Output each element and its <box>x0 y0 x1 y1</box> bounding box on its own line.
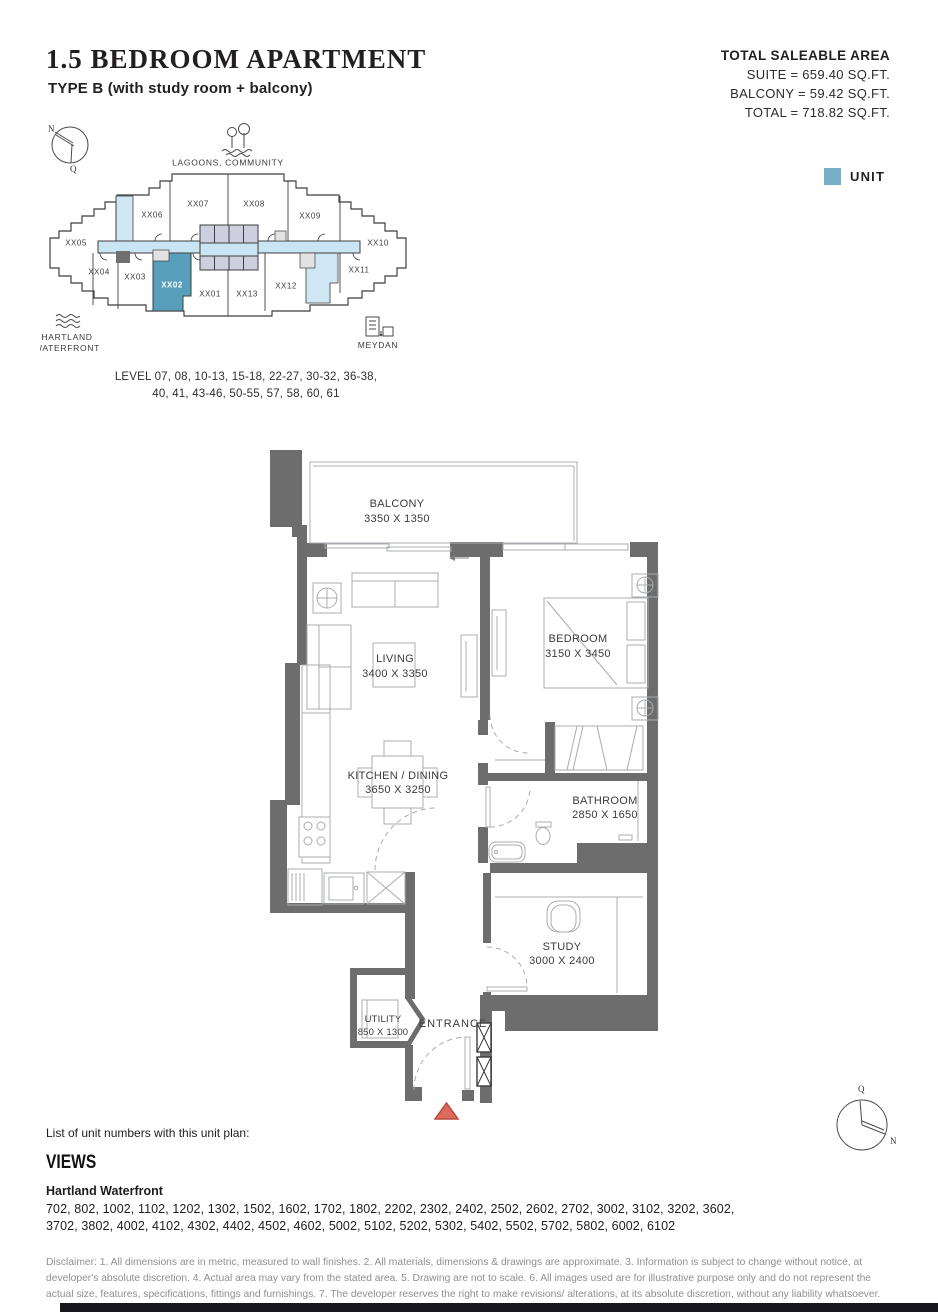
label-bathroom-name: BATHROOM <box>572 795 637 807</box>
unit-legend-label: UNIT <box>850 169 885 184</box>
compass-bottom-right-icon <box>837 1100 887 1150</box>
unit-label-xx08: XX08 <box>243 200 265 209</box>
label-entrance: ENTRANCE <box>419 1018 488 1030</box>
label-bedroom-name: BEDROOM <box>549 633 608 645</box>
label-study-dims: 3000 X 2400 <box>529 955 595 967</box>
compass-br-n-label: N <box>890 1136 897 1146</box>
unit-legend-swatch <box>824 168 841 185</box>
area-total: TOTAL = 718.82 SQ.FT. <box>721 105 890 120</box>
compass-top-left-icon <box>52 127 88 163</box>
bottom-bar <box>60 1303 938 1312</box>
unit-label-xx09: XX09 <box>299 212 321 221</box>
bathroom-door-arc <box>490 787 530 827</box>
lagoons-icon <box>222 124 252 157</box>
meydan-icon <box>366 317 393 336</box>
floor-plan: BALCONY 3350 X 1350 LIVING 3400 X 3350 B… <box>255 445 675 1135</box>
landmark-hartland-line2: WATERFRONT <box>40 343 100 353</box>
view-name: Hartland Waterfront <box>46 1184 163 1198</box>
unit-legend: UNIT <box>824 168 885 185</box>
label-utility-dims: 850 X 1300 <box>358 1027 409 1038</box>
area-balcony: BALCONY = 59.42 SQ.FT. <box>721 86 890 101</box>
disclaimer-text: Disclaimer: 1. All dimensions are in met… <box>46 1255 896 1303</box>
unit-label-xx07: XX07 <box>187 200 209 209</box>
keyplan-dark-box <box>116 251 130 263</box>
unit-label-xx12: XX12 <box>275 282 297 291</box>
label-kitchen-name: KITCHEN / DINING <box>348 770 449 782</box>
keyplan-building: XX05 XX06 XX07 XX08 XX09 XX10 XX04 XX03 … <box>50 174 406 316</box>
keyplan-gray-box-2 <box>275 231 286 241</box>
unit-label-xx01: XX01 <box>199 290 221 299</box>
views-heading: VIEWS <box>46 1152 96 1174</box>
label-balcony-dims: 3350 X 1350 <box>364 513 430 525</box>
unit-label-xx13: XX13 <box>236 290 258 299</box>
label-bathroom-dims: 2850 X 1650 <box>572 809 638 821</box>
compass-br-q-label: Q <box>858 1084 865 1094</box>
unit-label-xx10: XX10 <box>367 239 389 248</box>
entrance-marker-icon <box>435 1103 458 1119</box>
levels-line2: 40, 41, 43-46, 50-55, 57, 58, 60, 61 <box>96 386 396 403</box>
bedroom-door-arc <box>490 715 528 753</box>
saleable-area-block: TOTAL SALEABLE AREA SUITE = 659.40 SQ.FT… <box>721 48 890 120</box>
label-bedroom-dims: 3150 X 3450 <box>545 648 611 660</box>
entrance-door-arc <box>414 1037 467 1090</box>
area-suite: SUITE = 659.40 SQ.FT. <box>721 67 890 82</box>
unit-label-xx04: XX04 <box>88 268 110 277</box>
study-door-arc <box>487 947 527 987</box>
key-plan: N Q LAGOONS, COMMUNITY <box>40 118 420 363</box>
floorplan-brochure-page: 1.5 BEDROOM APARTMENT TYPE B (with study… <box>0 0 938 1312</box>
page-title: 1.5 BEDROOM APARTMENT <box>46 44 426 75</box>
unit-label-xx06: XX06 <box>141 211 163 220</box>
keyplan-core <box>200 225 258 270</box>
levels-text: LEVEL 07, 08, 10-13, 15-18, 22-27, 30-32… <box>96 369 396 402</box>
unit-numbers-list: 702, 802, 1002, 1102, 1202, 1302, 1502, … <box>46 1201 746 1236</box>
landmark-hartland-line1: HARTLAND <box>41 332 92 342</box>
keyplan-gray-box-1 <box>153 250 169 261</box>
label-living-dims: 3400 X 3350 <box>362 668 428 680</box>
landmark-meydan: MEYDAN <box>358 340 399 350</box>
unit-label-xx11: XX11 <box>349 266 370 275</box>
label-balcony-name: BALCONY <box>370 498 425 510</box>
room-labels: BALCONY 3350 X 1350 LIVING 3400 X 3350 B… <box>348 498 638 1038</box>
unit-label-xx03: XX03 <box>124 273 146 282</box>
compass-n-label: N <box>48 124 55 134</box>
label-utility-name: UTILITY <box>365 1014 402 1025</box>
keyplan-gray-box-3 <box>300 253 315 268</box>
label-study-name: STUDY <box>543 941 582 953</box>
waves-icon <box>56 315 80 328</box>
levels-line1: LEVEL 07, 08, 10-13, 15-18, 22-27, 30-32… <box>96 369 396 386</box>
area-heading: TOTAL SALEABLE AREA <box>721 48 890 63</box>
unit-list-heading: List of unit numbers with this unit plan… <box>46 1126 249 1140</box>
unit-label-xx05: XX05 <box>65 239 87 248</box>
landmark-lagoons: LAGOONS, COMMUNITY <box>172 157 284 167</box>
compass-bottom-right: Q N <box>822 1068 912 1168</box>
page-subtitle: TYPE B (with study room + balcony) <box>48 80 313 97</box>
compass-q-label: Q <box>70 164 77 174</box>
label-kitchen-dims: 3650 X 3250 <box>365 784 431 796</box>
label-living-name: LIVING <box>376 653 414 665</box>
unit-label-xx02-highlighted: XX02 <box>161 281 183 290</box>
balcony-railing <box>310 462 577 543</box>
